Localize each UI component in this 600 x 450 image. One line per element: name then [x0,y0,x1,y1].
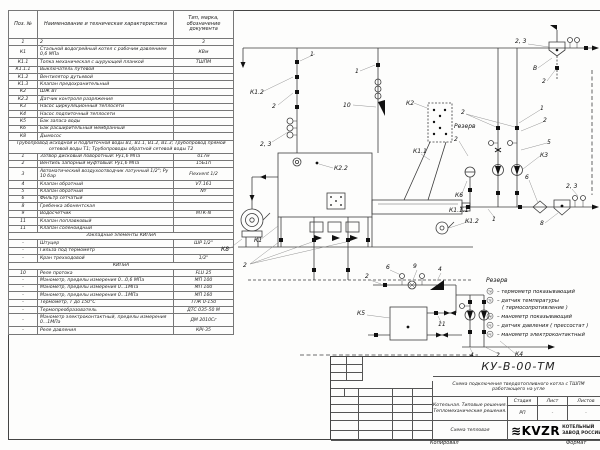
table-row: –Манометр, пределы измерения 0...0,6 МПа… [9,277,234,284]
table-row: К8Дымосос [9,133,234,140]
table-cell: – [9,299,38,306]
table-cell: 6 [9,195,38,202]
table-cell: – [9,307,38,314]
table-row: 2Вентиль запорный муфтовый: Ру1,6 МПа15Б… [9,160,234,167]
table-cell: К5 [9,118,38,125]
kvzr-logo: ≋KVZR [511,424,560,438]
table-row: 9ВодосчетчикМТК-N [9,210,234,217]
schematic-label: К3 [540,152,548,159]
legend-title: Резерв [486,277,508,284]
table-cell: Дымосос [38,133,174,140]
table-cell: Выключатель путевой [38,66,174,73]
table-cell: Бак расширительный мембранный [38,125,174,132]
schematic-label: 2 [365,273,369,280]
table-cell: – [9,277,38,284]
table-cell: Термометр, Т до 150°С [38,299,174,306]
drawing-sheet: Поз. №Наименование и техническая характе… [0,0,600,450]
table-cell: – [9,314,38,327]
table-cell: ШЖ ВТ [38,88,174,95]
table-cell: Гребенка абонентская [38,203,174,210]
schematic-label: К5 [357,310,365,317]
table-row: К5Бак запаса воды [9,118,234,125]
table-cell: 3 [9,168,38,181]
table-row: –Манометр, пределы измерения 0...1МПаМП … [9,284,234,291]
schematic-label: 2 [454,136,458,143]
schematic-label: 2, 3 [566,183,578,190]
tb-sheet-label: Лист [538,397,568,406]
tb-subtitle: Схема подключения твердотопливного котла… [433,377,600,397]
table-cell: Термопреобразователь [38,307,174,314]
table-row: 1Затвор дисковый поворотный: Ру1,6 МПа01… [9,153,234,160]
schematic-label: К6 [455,192,463,199]
table-row: К1.3Клапан предохранительный [9,81,234,88]
table-cell: Манометр, пределы измерения 0...0,6 МПа [38,277,174,284]
table-row: –ШтуцерШР 1/2" [9,240,234,247]
table-row: К1.1Топка механическая с шурующей планко… [9,59,234,66]
legend-symbol-code: РЕ [488,323,492,327]
schematic-label: 2 [243,262,247,269]
legend-item-text: – термометр показывающий [497,289,575,295]
schematic-label: 4 [438,266,442,273]
table-cell: К1 [9,46,38,59]
legend-item-text: ( термосопротивление ) [502,305,568,311]
table-cell: К1.2 [9,74,38,81]
table-row: –Гильза под термометр [9,247,234,254]
table-cell: – [9,292,38,299]
table-cell: Вентиль запорный муфтовый: Ру1,6 МПа [38,160,174,167]
table-cell: Клапан предохранительный [38,81,174,88]
table-cell: Штуцер [38,240,174,247]
schematic-label: 2 [542,78,546,85]
schematic: 1К1.222, 31102, 3В2К2.2К1К82К2РезервК1.1… [218,10,600,360]
table-cell: Манометр, пределы измерения 0...1МПа [38,284,174,291]
table-cell: К2.2 [9,96,38,103]
table-cell: 9 [9,210,38,217]
table-row: 3Автоматический воздухоотводчик латунный… [9,168,234,181]
table-cell: К3 [9,103,38,110]
table-cell: 2 [38,39,174,46]
table-row: –Кран трехходовой1/2" [9,255,234,262]
tb-col-ndoc [359,389,393,397]
table-cell: Реле протока [38,270,174,277]
table-row: 123 [9,39,234,46]
tb-col-podp [393,389,413,397]
tb-col-list [345,389,359,397]
table-cell: К4 [9,111,38,118]
tb-row-proveril [331,405,359,413]
table-cell: – [9,284,38,291]
tb-col-data [413,389,433,397]
table-cell: 11 [9,218,38,225]
table-cell: Автоматический воздухоотводчик латунный … [38,168,174,181]
table-cell: 11 [9,225,38,232]
table-row: –Термометр, Т до 150°СТТЖ 0-150 [9,299,234,306]
table-cell: Реле давления [38,327,174,334]
schematic-label: В [533,65,537,72]
logo-waves-icon: ≋ [511,424,522,438]
table-cell: Клапан обратный [38,188,174,195]
tb-logo: ≋KVZR КОТЕЛЬНЫЙ ЗАВОД РОССИИ [508,421,600,441]
table-cell: Фильтр сетчатый [38,195,174,202]
table-cell: К2 [9,88,38,95]
schematic-label: К1.2 [465,218,479,225]
table-cell: Кран трехходовой [38,255,174,262]
table-cell: К6 [9,125,38,132]
schematic-label: 5 [547,139,551,146]
tb-stage-value: РП [508,406,538,421]
parts-table-body: 123К1Стальной водогрейный котел с рабочи… [9,39,234,335]
table-cell: К1.3 [9,81,38,88]
table-cell: 4 [9,181,38,188]
schematic-label: К1.1 [413,148,427,155]
table-row: КИПиА [9,262,234,269]
tb-sheet-value: - [538,406,568,421]
schematic-label: 9 [413,263,417,270]
schematic-label: К1.2 [250,89,264,96]
table-cell: Клапан поплавковый [38,218,174,225]
schematic-label: К1 [254,237,262,244]
tb-sheets-value: - [568,406,600,421]
schematic-label: 1 [310,51,314,58]
table-cell: К1.1 [9,59,38,66]
table-cell: 5 [9,188,38,195]
table-row: Трубопровод исходной и подпиточной воды … [9,140,234,153]
table-row: –Манометр электроконтактный, пределы изм… [9,314,234,327]
table-row: К2ШЖ ВТ [9,88,234,95]
table-row: 11Клапан поплавковый [9,218,234,225]
tb-sheets-label: Листов [568,397,600,406]
table-cell: Насос подпиточный теплосети [38,111,174,118]
table-cell: Манометр электроконтактный, пределы изме… [38,314,174,327]
schematic-label: К1.1.1 [449,207,469,214]
table-cell: Затвор дисковый поворотный: Ру1,6 МПа [38,153,174,160]
table-section: Трубопровод исходной и подпиточной воды … [9,140,234,153]
legend-symbol-code: ТЕ [488,298,492,302]
legend-item-text: – датчик давления ( прессостат ) [497,323,588,329]
tb-sheet-name: Схема тепловая [433,421,508,441]
table-cell: Вентилятор дутьевой [38,74,174,81]
table-cell: 2 [9,160,38,167]
table-row: К4Насос подпиточный теплосети [9,111,234,118]
schematic-label: 6 [525,174,529,181]
table-cell: Топка механическая с шурующей планкой [38,59,174,66]
footer-copy-label: Копировал [430,440,459,446]
table-row: –Манометр, пределы измерения 0...1МПаМП … [9,292,234,299]
tb-stage-label: Стадия [508,397,538,406]
schematic-label: 2 [272,103,276,110]
parts-table-header: Поз. №Наименование и техническая характе… [9,11,234,39]
tb-doc-number: КУ-В-00-ТМ [433,357,600,377]
schematic-label: 2 [543,117,547,124]
table-cell: – [9,255,38,262]
table-row: 11Клапан соленоидный [9,225,234,232]
schematic-label: 2, 3 [515,38,527,45]
table-row: К2.2Датчик контроля разряжения [9,96,234,103]
table-row: К1Стальной водогрейный котел с рабочим д… [9,46,234,59]
table-row: К6Бак расширительный мембранный [9,125,234,132]
table-cell: Гильза под термометр [38,247,174,254]
table-section: КИПиА [9,262,234,269]
legend-symbol-code: РЕ [488,332,492,336]
table-cell: 10 [9,270,38,277]
table-cell: Бак запаса воды [38,118,174,125]
legend-item-text: – манометр показывающий [497,314,573,320]
table-cell: 8 [9,203,38,210]
table-cell: Водосчетчик [38,210,174,217]
table-section: Закладные элементы КИПиА [9,232,234,239]
table-header: Поз. № [9,11,38,39]
tb-project-name: Котельная. Типовые решения.Тепломеханиче… [433,397,508,421]
schematic-label: 11 [438,321,446,328]
tb-row-gip [331,413,359,421]
schematic-label: 1 [355,68,359,75]
table-cell: К8 [9,133,38,140]
table-row: 4Клапан обратныйV7.161 [9,181,234,188]
table-cell: Насос циркуляционный теплосети [38,103,174,110]
table-row: К3Насос циркуляционный теплосети [9,103,234,110]
table-row: Закладные элементы КИПиА [9,232,234,239]
table-cell: К1.1.1 [9,66,38,73]
schematic-label: 2, 3 [260,141,272,148]
table-cell: 1 [9,153,38,160]
table-row: К1.2Вентилятор дутьевой [9,74,234,81]
tb-row-proekt [331,397,359,405]
schematic-label: 10 [343,102,351,109]
schematic-label: К8 [221,246,229,253]
logo-caption: КОТЕЛЬНЫЙ ЗАВОД РОССИИ [562,425,600,436]
tb-col-izm [331,389,345,397]
table-cell: Датчик контроля разряжения [38,96,174,103]
legend-symbol-code: ТИ [488,289,492,293]
schematic-label: 8 [540,220,544,227]
table-cell: Стальной водогрейный котел с рабочим дав… [38,46,174,59]
table-row: 8Гребенка абонентская [9,203,234,210]
schematic-label: 6 [386,264,390,271]
table-row: 6Фильтр сетчатый [9,195,234,202]
table-cell: Клапан соленоидный [38,225,174,232]
title-block: КУ-В-00-ТМ Схема подключения твердотопли… [330,356,600,440]
schematic-label: Резерв [454,123,476,130]
legend-item-text: – манометр электроконтактный [497,332,585,338]
legend-item-text: – датчик температуры [497,298,559,304]
schematic-label: 1 [492,216,496,223]
table-cell: 1 [9,39,38,46]
table-row: К1.1.1Выключатель путевой [9,66,234,73]
schematic-label: 1 [540,105,544,112]
schematic-label: К2.2 [334,165,348,172]
table-row: 10Реле протокаFLU 25 [9,270,234,277]
table-header: Наименование и техническая характеристик… [38,11,174,39]
schematic-label: 2 [461,109,465,116]
table-cell: Клапан обратный [38,181,174,188]
schematic-label: К2 [406,100,414,107]
table-cell: – [9,247,38,254]
table-row: 5Клапан обратныйNY [9,188,234,195]
legend-symbol-code: РИ [488,314,492,318]
table-row: –ТермопреобразовательДТС 035-50 М [9,307,234,314]
table-cell: – [9,240,38,247]
table-cell: Манометр, пределы измерения 0...1МПа [38,292,174,299]
footer-format-label: Формат [566,440,586,446]
table-cell: – [9,327,38,334]
parts-table: Поз. №Наименование и техническая характе… [8,10,234,335]
table-row: –Реле давленияКРI-35 [9,327,234,334]
